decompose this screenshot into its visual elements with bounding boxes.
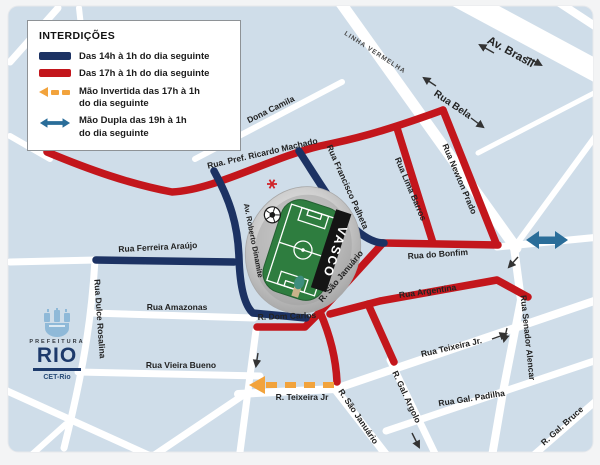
street-label-teixeira-jr-west: R. Teixeira Jr	[276, 392, 329, 402]
navy-bar-swatch	[39, 52, 71, 60]
legend-item-label: Mão Invertida das 17h à 1h	[79, 86, 200, 98]
page: { "colors": { "navy": "#1c3263", "red": …	[0, 0, 600, 465]
prefeitura-rio-logo: PREFEITURA RIO CET-Rio	[29, 308, 85, 381]
legend-item-label: Das 14h à 1h do dia seguinte	[79, 51, 209, 63]
legend-item-17h: Das 17h à 1h do dia seguinte	[39, 68, 229, 80]
logo-rio-text: RIO	[29, 345, 85, 366]
legend-item-label: do dia seguinte	[79, 128, 187, 140]
logo-divider	[33, 368, 81, 371]
legend-item-mao-dupla: Mão Dupla das 19h à 1h do dia seguinte	[39, 115, 229, 140]
legend-item-14h: Das 14h à 1h do dia seguinte	[39, 51, 229, 63]
street-label-amazonas: Rua Amazonas	[147, 302, 208, 312]
red-bar-swatch	[39, 69, 71, 77]
legend-title: INTERDIÇÕES	[39, 30, 229, 42]
street-label-dom-carlos: R. Dom Carlos	[257, 310, 316, 322]
street-label-vieira-bueno: Rua Vieira Bueno	[146, 360, 216, 370]
legend-item-label: do dia seguinte	[79, 98, 200, 110]
logo-cet-rio-text: CET-Rio	[29, 374, 85, 381]
rio-crest-icon	[40, 308, 74, 338]
legend-item-label: Das 17h à 1h do dia seguinte	[79, 68, 209, 80]
legend-panel: INTERDIÇÕES Das 14h à 1h do dia seguinte…	[27, 20, 241, 151]
teal-double-arrow-icon	[39, 117, 71, 129]
legend-item-mao-invertida: Mão Invertida das 17h à 1h do dia seguin…	[39, 86, 229, 111]
legend-item-label: Mão Dupla das 19h à 1h	[79, 115, 187, 127]
orange-dashed-arrow-icon	[39, 87, 71, 98]
